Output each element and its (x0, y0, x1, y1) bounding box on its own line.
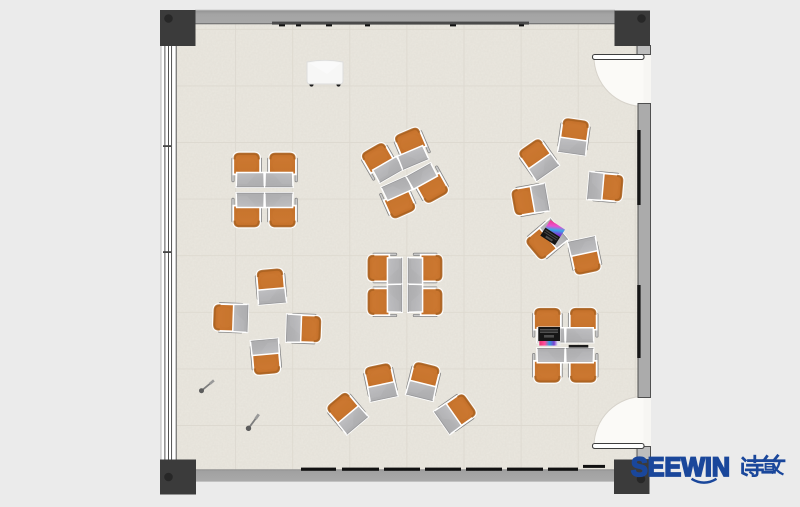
svg-text:SEEWIN: SEEWIN (631, 452, 730, 482)
